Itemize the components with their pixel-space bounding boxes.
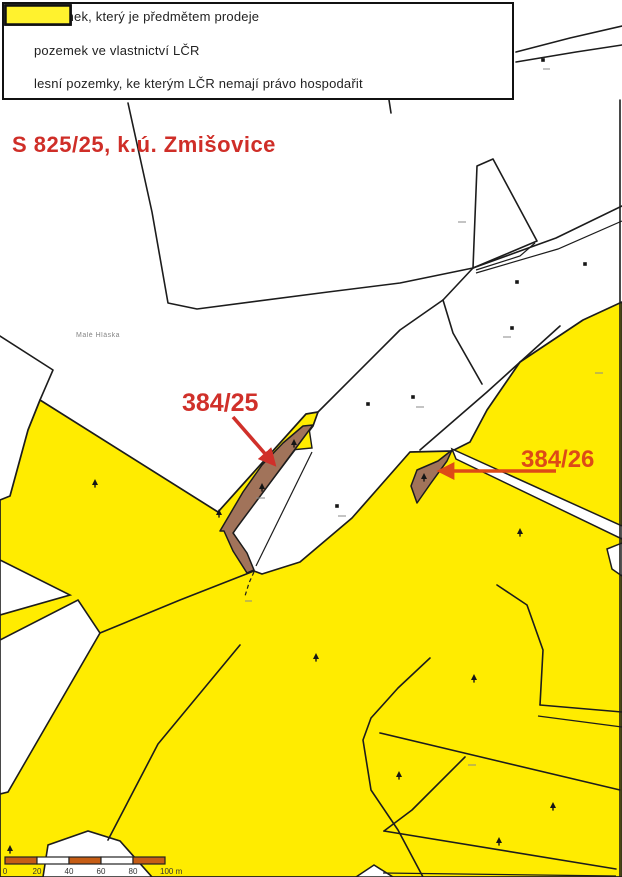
scale-tick: 100 m xyxy=(160,867,183,876)
map-svg: Malé Hláska 384/25 384/26 S 825/25, k.ú.… xyxy=(0,0,622,877)
deciduous-tree-icon xyxy=(541,58,545,62)
deciduous-tree-icon xyxy=(335,504,339,508)
scale-tick: 40 xyxy=(65,867,74,876)
scale-tick: 80 xyxy=(129,867,138,876)
legend-row-lcr-owned: pozemek ve vlastnictví LČR xyxy=(34,43,512,58)
legend-swatch-yellow xyxy=(4,4,72,26)
swatch-rect xyxy=(6,6,71,25)
deciduous-tree-icon xyxy=(366,402,370,406)
legend-row-forest-parcels: lesní pozemky, ke kterým LČR nemají práv… xyxy=(34,76,512,91)
cadastral-map-page: Malé Hláska 384/25 384/26 S 825/25, k.ú.… xyxy=(0,0,622,877)
deciduous-tree-icon xyxy=(411,395,415,399)
scale-segment xyxy=(37,857,69,864)
place-label: Malé Hláska xyxy=(76,332,120,339)
parcel-label-384-26: 384/26 xyxy=(521,446,594,473)
scale-tick: 0 xyxy=(3,867,8,876)
scale-tick: 20 xyxy=(33,867,42,876)
deciduous-tree-icon xyxy=(510,326,514,330)
parcel-label-384-25: 384/25 xyxy=(182,389,259,417)
legend-label: pozemek ve vlastnictví LČR xyxy=(34,43,200,58)
deciduous-tree-icon xyxy=(583,262,587,266)
map-legend: pozemek, který je předmětem prodeje poze… xyxy=(2,2,514,100)
scale-segment xyxy=(133,857,165,864)
map-title: S 825/25, k.ú. Zmišovice xyxy=(12,132,276,157)
scale-tick: 60 xyxy=(97,867,106,876)
legend-row-sale-parcel: pozemek, který je předmětem prodeje xyxy=(34,9,512,24)
scale-segment xyxy=(69,857,101,864)
scale-segment xyxy=(101,857,133,864)
legend-label: lesní pozemky, ke kterým LČR nemají práv… xyxy=(34,76,363,91)
deciduous-tree-icon xyxy=(515,280,519,284)
scale-segment xyxy=(5,857,37,864)
